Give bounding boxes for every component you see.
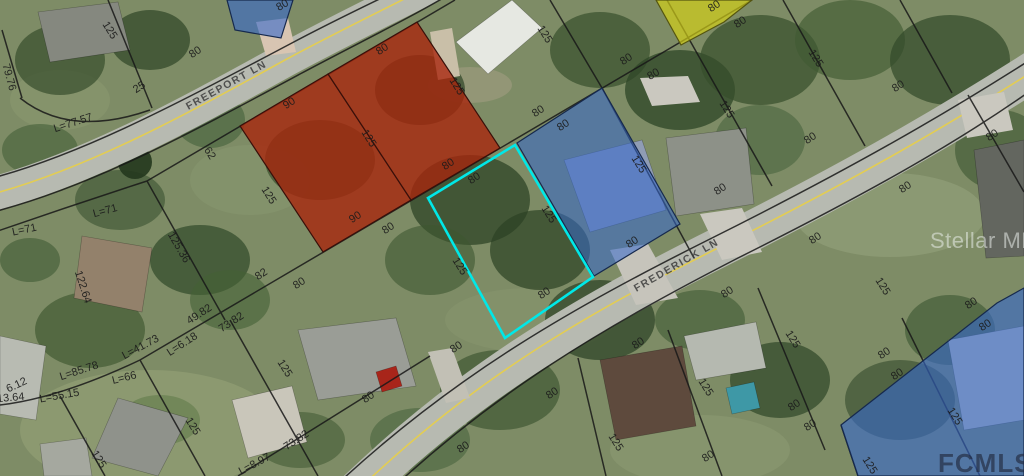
watermark-fcmls: FCMLS bbox=[938, 448, 1024, 476]
swimming-pool bbox=[726, 382, 760, 414]
aerial-plat-map: 12579.7625L=77.57808062125L=71L=71125.36… bbox=[0, 0, 1024, 476]
watermark-stellar-mls: Stellar MLS bbox=[930, 228, 1024, 253]
house-roof bbox=[40, 438, 92, 476]
house-roof bbox=[666, 128, 754, 216]
plat-map-image[interactable]: 12579.7625L=77.57808062125L=71L=71125.36… bbox=[0, 0, 1024, 476]
house-roof bbox=[298, 318, 416, 400]
house-roof bbox=[600, 346, 696, 440]
dimension-label: 13.64 bbox=[0, 391, 25, 405]
